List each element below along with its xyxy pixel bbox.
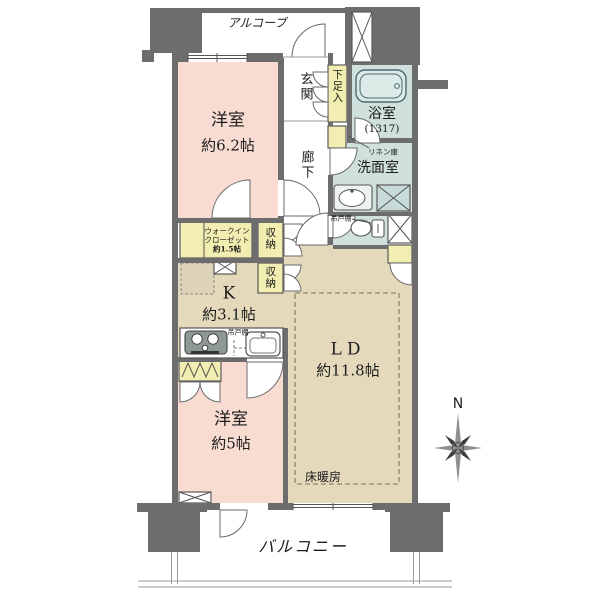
kitchen-size-label: 約3.1帖	[202, 308, 256, 323]
hall-right-wall-c	[328, 175, 333, 216]
ld-storage-box	[388, 245, 412, 263]
alcove-top-wall	[202, 8, 345, 13]
top-wall-b	[247, 53, 283, 62]
right-wall	[412, 62, 418, 503]
front-door	[292, 24, 325, 57]
balcony-railing	[138, 552, 452, 587]
left-wall	[172, 53, 178, 503]
hall-right-wall-a	[328, 53, 333, 65]
linen-closet-box	[328, 126, 346, 148]
top-wall-a	[172, 53, 188, 62]
refrigerator-space	[181, 263, 214, 294]
pillar-bottom-left	[148, 512, 200, 552]
bath-bottom-wall-b	[378, 138, 412, 143]
bathroom-label: 浴室	[368, 107, 396, 121]
bedroom2-size-label: 約5帖	[211, 437, 251, 452]
hall-right-wall-b	[328, 122, 333, 126]
shoe-cabinet-door-2	[313, 87, 328, 102]
bathtub-icon	[356, 70, 406, 102]
kitchen-ld-stub-wall	[283, 328, 288, 362]
washroom-label: 洗面室	[357, 161, 399, 175]
kitchen-label: K	[223, 286, 236, 303]
living-dining-label: LD	[331, 342, 366, 359]
pillar-bottom-right-flange	[385, 503, 450, 512]
storage1-label: 収納	[265, 227, 276, 250]
kitchen-cupboard-label: 吊戸棚	[228, 330, 249, 337]
linen-closet-label: リネン庫	[368, 148, 398, 156]
shoe-cabinet-door-3	[313, 102, 328, 117]
hall-right-wall-d	[328, 237, 333, 245]
balcony-door	[220, 510, 247, 537]
bedroom1-size-label: 約6.2帖	[201, 139, 255, 154]
bedroom2-right-wall	[283, 357, 288, 503]
alcove-label: アルコーブ	[228, 17, 287, 29]
wic-label-line2: クローゼット	[205, 236, 250, 244]
shoe-cabinet-door-1	[313, 72, 328, 87]
compass-north-label: N	[453, 397, 463, 411]
bedroom2-label: 洋室	[214, 412, 248, 429]
right-wall-stub	[412, 80, 448, 89]
kitchen-sink-icon	[246, 332, 280, 356]
bathroom-size-label: (1317)	[365, 124, 400, 135]
hallway-label: 廊下	[300, 150, 313, 180]
bottom-wall-b	[268, 503, 293, 510]
shoe-cabinet-label: 下足入	[332, 69, 343, 104]
compass-icon	[434, 413, 482, 483]
pillar-top-left-flange	[142, 50, 154, 62]
bedroom1-label: 洋室	[211, 113, 245, 130]
kitchen-top-wall	[172, 258, 284, 263]
wic-storage-divider-wall	[252, 222, 258, 258]
pillar-bottom-left-flange	[137, 503, 207, 512]
washbasin-icon	[334, 185, 372, 210]
floorplan: アルコーブ 玄関 下足入 浴室 (1317) リネン庫 洗面室 廊下 洋室 約6…	[0, 0, 600, 600]
toilet-bottom-wall	[333, 245, 388, 249]
balcony-label: バルコニー	[258, 539, 348, 555]
bath-left-wall	[347, 62, 352, 138]
entrance-label: 玄関	[299, 72, 312, 102]
stove-icon	[185, 331, 227, 355]
floor-heating-label: 床暖房	[305, 471, 341, 483]
storage2-label: 収納	[265, 266, 276, 289]
ld-door	[296, 213, 328, 245]
bedroom1-door	[284, 180, 320, 216]
pillar-bottom-right	[390, 512, 443, 552]
bedroom1-bottom-wall	[172, 218, 284, 223]
wic-label-line3: 約1.5帖	[213, 245, 241, 253]
pillar-top-left	[150, 8, 202, 53]
hall-left-wall-upper	[278, 58, 284, 180]
living-dining-size-label: 約11.8帖	[316, 364, 379, 379]
wic-label-line1: ウォークイン	[205, 227, 250, 235]
toilet-cupboard-label: 吊戸棚	[331, 216, 352, 223]
